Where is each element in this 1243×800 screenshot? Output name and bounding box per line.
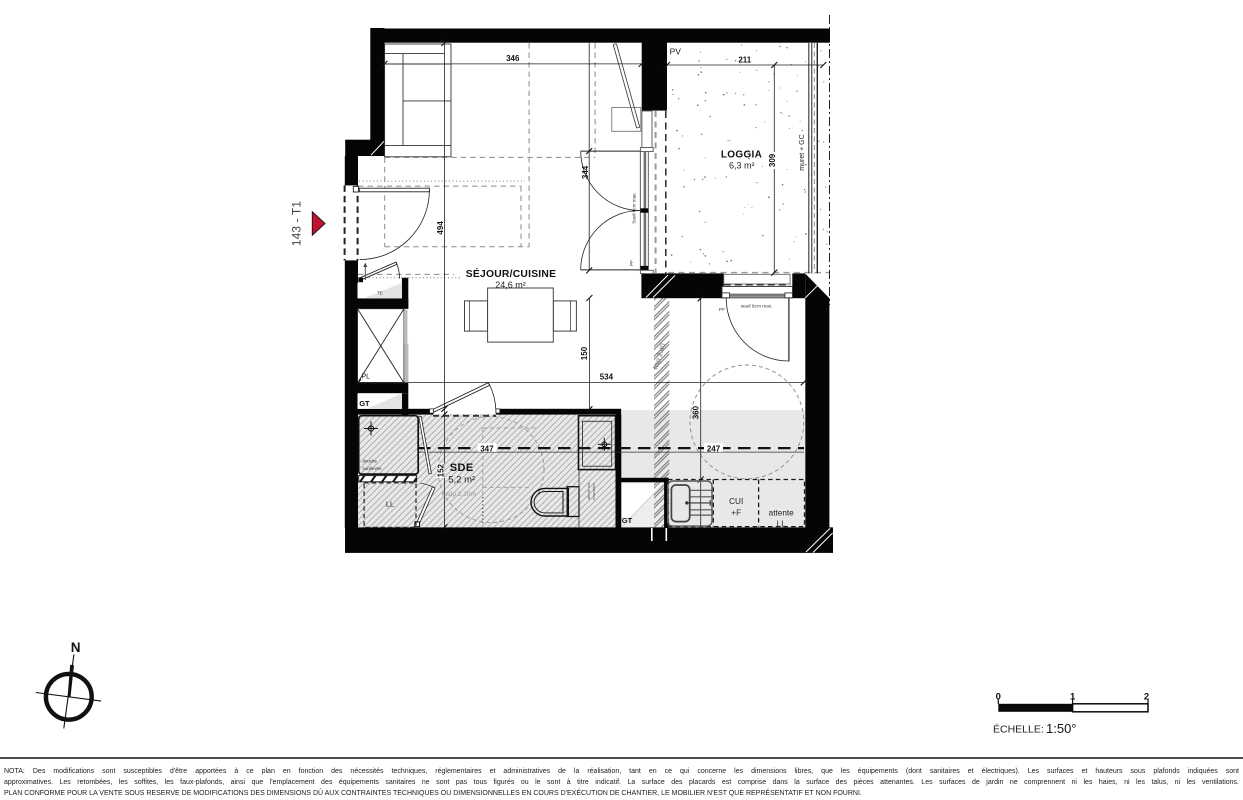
svg-text:LL: LL	[386, 500, 394, 509]
svg-text:ÉCHELLE:: ÉCHELLE:	[993, 722, 1044, 735]
svg-text:hsdp 2,20m: hsdp 2,20m	[442, 491, 476, 498]
svg-text:seuil 6cm max.: seuil 6cm max.	[741, 304, 773, 310]
svg-text:surélevée: surélevée	[363, 466, 383, 471]
svg-text:247: 247	[707, 445, 721, 454]
svg-text:LOGGIA: LOGGIA	[721, 150, 762, 161]
svg-text:douche: douche	[363, 459, 378, 464]
svg-text:211: 211	[738, 56, 751, 65]
svg-text:143 - T1: 143 - T1	[289, 201, 303, 246]
svg-text:309: 309	[768, 153, 777, 167]
svg-text:24,6 m²: 24,6 m²	[495, 280, 526, 290]
svg-text:6,3 m²: 6,3 m²	[729, 161, 755, 171]
svg-text:PF: PF	[629, 260, 634, 266]
svg-text:SÉJOUR/CUISINE: SÉJOUR/CUISINE	[466, 267, 556, 280]
svg-text:150: 150	[580, 346, 589, 360]
svg-text:CUI: CUI	[729, 497, 743, 506]
svg-text:347: 347	[480, 444, 494, 453]
svg-text:534: 534	[600, 373, 614, 382]
svg-text:GT: GT	[622, 516, 633, 525]
svg-text:attente rob.: attente rob.	[587, 482, 591, 500]
svg-text:muret + GC: muret + GC	[799, 134, 806, 170]
svg-text:LL: LL	[777, 520, 787, 529]
svg-text:+F: +F	[731, 509, 741, 518]
svg-text:494: 494	[436, 221, 445, 235]
svg-text:TE: TE	[377, 291, 383, 296]
svg-text:360: 360	[692, 405, 701, 419]
svg-text:152: 152	[436, 463, 445, 477]
svg-text:attente: attente	[769, 509, 794, 518]
svg-text:évacuation: évacuation	[592, 483, 596, 500]
svg-text:344: 344	[581, 165, 590, 179]
svg-text:1:50°: 1:50°	[1046, 721, 1077, 736]
svg-text:5,2 m²: 5,2 m²	[448, 474, 475, 485]
svg-text:GT: GT	[359, 399, 370, 408]
svg-text:N: N	[71, 640, 81, 655]
svg-text:PL: PL	[362, 374, 371, 381]
svg-text:PF: PF	[719, 307, 725, 313]
svg-text:PV: PV	[670, 46, 682, 56]
svg-text:346: 346	[506, 54, 520, 63]
svg-text:Seuil 6cm max.: Seuil 6cm max.	[632, 192, 637, 223]
svg-text:SDE: SDE	[450, 462, 474, 474]
